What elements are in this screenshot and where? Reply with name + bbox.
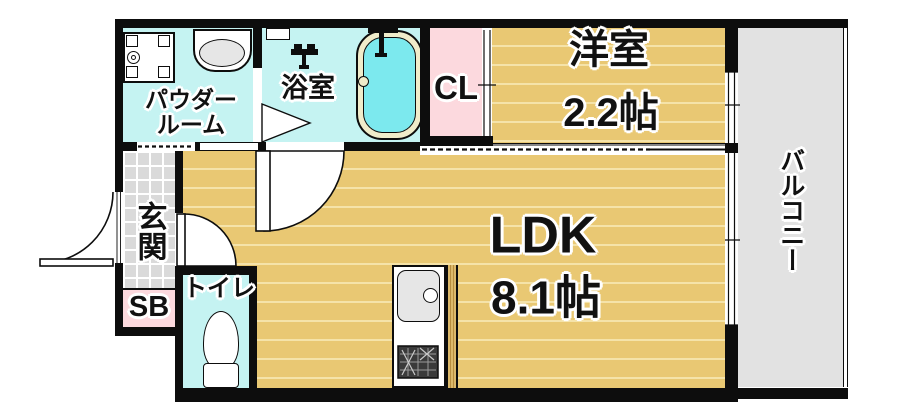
entry-door-jamb-lines (117, 192, 121, 263)
toilet-door-swing (184, 214, 236, 266)
balcony-window-ticks (725, 72, 740, 325)
powder-room-label-line2: ルーム (157, 112, 225, 138)
western-room-label: 洋室 (569, 28, 649, 72)
balcony-window-glazing-lines (729, 72, 735, 325)
toilet-door-leaf (177, 214, 185, 266)
toilet-label: トイレ (183, 276, 255, 302)
hall-door-swing (264, 151, 344, 231)
powder-room-label-line1: パウダー (145, 87, 237, 113)
entrance-label: 玄関 (133, 201, 166, 261)
western-room-size-label: 2.2帖 (563, 91, 659, 135)
shower-fixture-icon (291, 44, 318, 69)
closet-label: CL (434, 70, 478, 106)
balcony-label: バルコニー (776, 148, 804, 273)
entry-door-leaf (40, 259, 113, 266)
hall-door-leaf (256, 151, 270, 231)
entry-door-arc (42, 192, 113, 263)
powder-room-label: パウダー ルーム (145, 88, 237, 139)
bathroom-label: 浴室 (281, 74, 335, 104)
shoe-box-label: SB (129, 292, 169, 324)
ldk-size-label: 8.1帖 (491, 273, 601, 324)
bathtub-faucet-icon (368, 24, 398, 57)
floor-plan: パウダー ルーム 浴室 CL 洋室 2.2帖 LDK 8.1帖 バルコニー 玄関… (0, 0, 902, 416)
stove-icon (398, 346, 438, 378)
ldk-label: LDK (490, 207, 597, 264)
bathroom-folding-door-icon (262, 104, 310, 142)
